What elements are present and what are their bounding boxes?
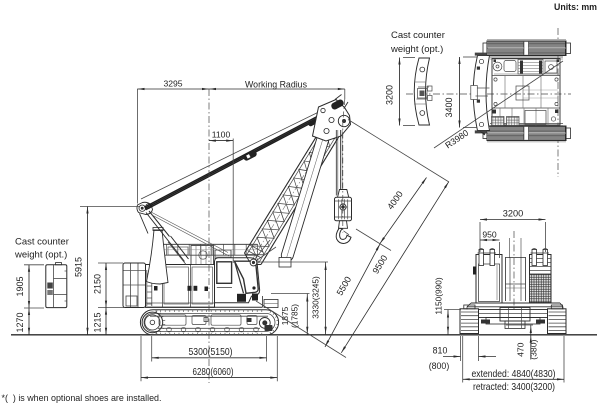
svg-text:1905: 1905 bbox=[15, 276, 25, 296]
svg-text:1215: 1215 bbox=[93, 312, 103, 332]
svg-text:6280(6060): 6280(6060) bbox=[193, 366, 234, 378]
svg-text:Cast counter: Cast counter bbox=[391, 30, 445, 41]
svg-text:950: 950 bbox=[482, 229, 497, 239]
svg-text:*( ) is when optional shoes a: *( ) is when optional shoes are installe… bbox=[2, 393, 162, 403]
svg-text:weight (opt.): weight (opt.) bbox=[390, 44, 443, 55]
svg-text:Cast counter: Cast counter bbox=[15, 237, 69, 248]
svg-text:(380): (380) bbox=[529, 340, 539, 360]
svg-text:1270: 1270 bbox=[15, 312, 25, 332]
svg-text:3400: 3400 bbox=[444, 97, 454, 117]
svg-text:Working Radius: Working Radius bbox=[245, 79, 308, 89]
svg-text:1150(990): 1150(990) bbox=[434, 277, 444, 314]
svg-text:5300(5150): 5300(5150) bbox=[189, 346, 233, 358]
svg-text:5915: 5915 bbox=[74, 257, 84, 277]
svg-text:3200: 3200 bbox=[385, 85, 395, 105]
svg-text:(1785): (1785) bbox=[290, 304, 300, 328]
svg-text:retracted: 3400(3200): retracted: 3400(3200) bbox=[473, 382, 555, 393]
svg-text:weight (opt.): weight (opt.) bbox=[14, 250, 67, 261]
svg-text:810: 810 bbox=[433, 346, 448, 356]
svg-text:3200: 3200 bbox=[503, 209, 523, 219]
svg-text:1100: 1100 bbox=[212, 130, 231, 140]
svg-text:extended: 4840(4830): extended: 4840(4830) bbox=[472, 369, 556, 380]
svg-text:(800): (800) bbox=[429, 361, 450, 371]
svg-text:3330(3245): 3330(3245) bbox=[311, 276, 321, 319]
svg-text:470: 470 bbox=[516, 342, 526, 357]
svg-text:2150: 2150 bbox=[93, 274, 103, 294]
svg-text:3295: 3295 bbox=[163, 79, 182, 89]
svg-text:Units: mm: Units: mm bbox=[554, 2, 597, 12]
svg-text:1875: 1875 bbox=[280, 306, 290, 325]
